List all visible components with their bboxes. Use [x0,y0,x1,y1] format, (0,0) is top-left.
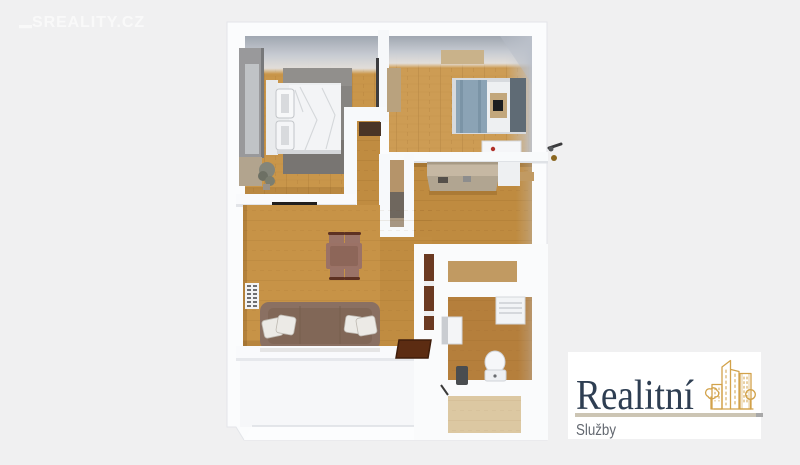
svg-text:Realitní: Realitní [576,373,694,419]
svg-text:SREALITY.CZ: SREALITY.CZ [32,14,145,31]
svg-text:Služby: Služby [576,422,616,439]
